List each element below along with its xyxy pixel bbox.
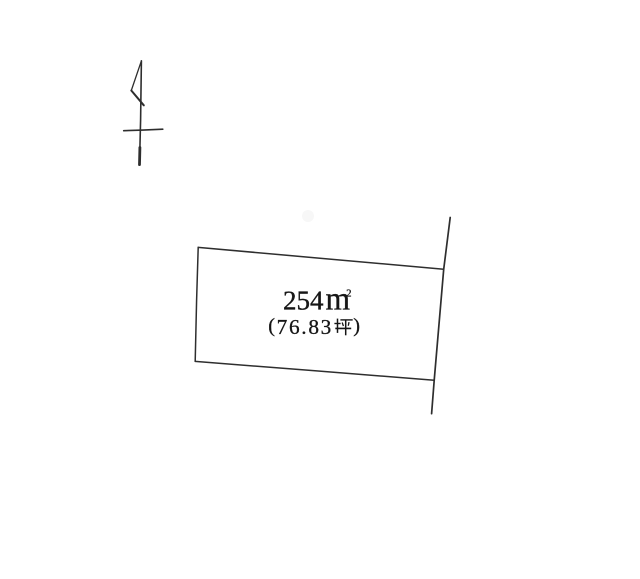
svg-text:m: m (326, 282, 351, 318)
